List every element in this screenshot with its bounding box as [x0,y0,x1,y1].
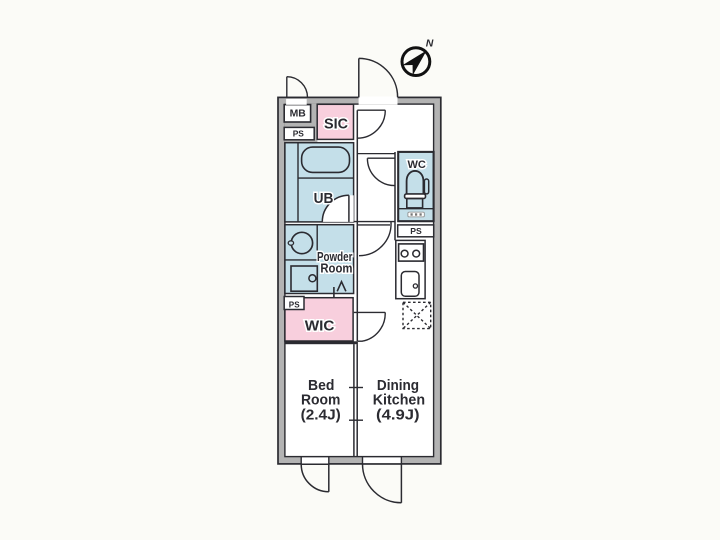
svg-text:PS: PS [410,226,422,236]
svg-text:PS: PS [293,128,305,138]
svg-text:PS: PS [289,299,300,309]
svg-text:MB: MB [290,108,306,119]
svg-text:Room: Room [320,261,352,275]
svg-text:WIC: WIC [305,319,335,335]
svg-text:(4.9J): (4.9J) [376,406,420,423]
svg-text:WC: WC [408,159,426,171]
svg-text:N: N [426,38,434,50]
svg-text:SIC: SIC [324,116,348,133]
svg-text:UB: UB [314,190,334,207]
svg-text:(2.4J): (2.4J) [301,406,341,423]
